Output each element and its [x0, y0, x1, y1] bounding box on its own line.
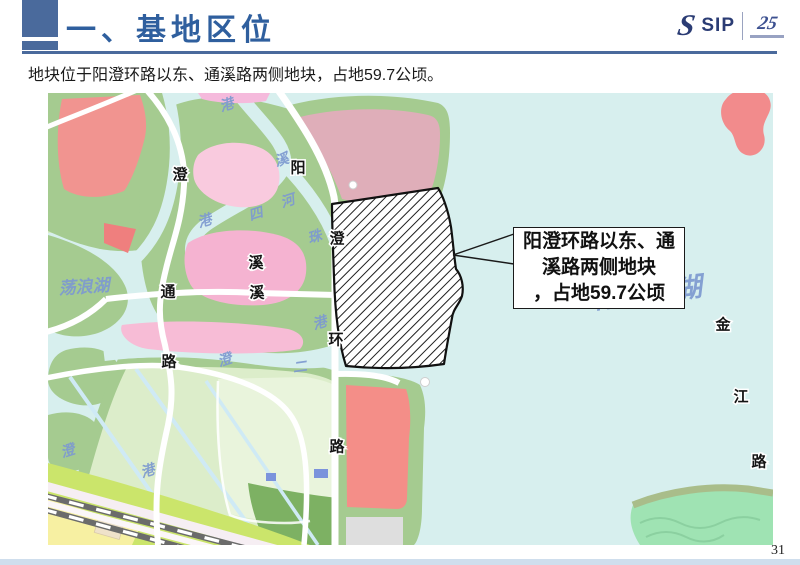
map-road-label: 澄: [172, 166, 188, 184]
map-road-label: 阳: [290, 160, 305, 177]
sip-s-icon: S: [675, 11, 697, 41]
sip-logo-text: SIP: [701, 15, 735, 37]
callout-line: ，占地59.7公顷: [533, 281, 665, 307]
building: [266, 473, 276, 481]
map-road-label: 路: [329, 438, 345, 456]
site-boundary-hatched: [332, 188, 463, 368]
header-accent-bar: [22, 41, 58, 50]
site-map-svg: 港溪河四港珠荡浪湖港澄二澄港阳澄东湖澄阳溪通溪路澄环路金江路: [48, 93, 773, 545]
map-road-label: 金: [714, 316, 731, 334]
roundabout: [349, 181, 357, 189]
page-number: 31: [771, 543, 785, 559]
map-water-label: 荡浪湖: [58, 276, 113, 299]
header-divider-line: [22, 51, 777, 54]
sip-logo: S SIP 25: [678, 8, 784, 44]
map-road-label: 环: [328, 332, 343, 349]
page-title: 一、基地区位: [66, 5, 276, 49]
map-road-label: 溪: [249, 284, 265, 302]
map-road-label: 路: [751, 453, 767, 471]
map-road-label: 通: [160, 284, 175, 301]
header-accent-square: [22, 0, 58, 37]
anniversary-logo: 25: [750, 14, 784, 38]
subtitle-text: 地块位于阳澄环路以东、通溪路两侧地块，占地59.7公顷。: [28, 61, 443, 85]
anniversary-number: 25: [755, 14, 778, 33]
map-road-label: 澄: [329, 230, 345, 248]
callout-box: 阳澄环路以东、通 溪路两侧地块 ，占地59.7公顷: [513, 227, 685, 309]
anniversary-tagline-bar: [750, 35, 784, 38]
map-road-label: 江: [733, 388, 748, 406]
location-map: 港溪河四港珠荡浪湖港澄二澄港阳澄东湖澄阳溪通溪路澄环路金江路: [48, 93, 773, 545]
roundabout: [421, 378, 430, 387]
slide: 一、基地区位 地块位于阳澄环路以东、通溪路两侧地块，占地59.7公顷。 S SI…: [0, 0, 800, 565]
map-road-label: 路: [161, 353, 177, 371]
map-road-label: 溪: [248, 254, 264, 272]
callout-line: 阳澄环路以东、通: [523, 229, 675, 255]
callout-line: 溪路两侧地块: [542, 255, 656, 281]
red-block: [346, 385, 410, 509]
building: [314, 469, 328, 478]
logo-divider: [742, 12, 743, 40]
gray-block: [346, 517, 403, 545]
footer-accent-bar: [0, 559, 800, 565]
